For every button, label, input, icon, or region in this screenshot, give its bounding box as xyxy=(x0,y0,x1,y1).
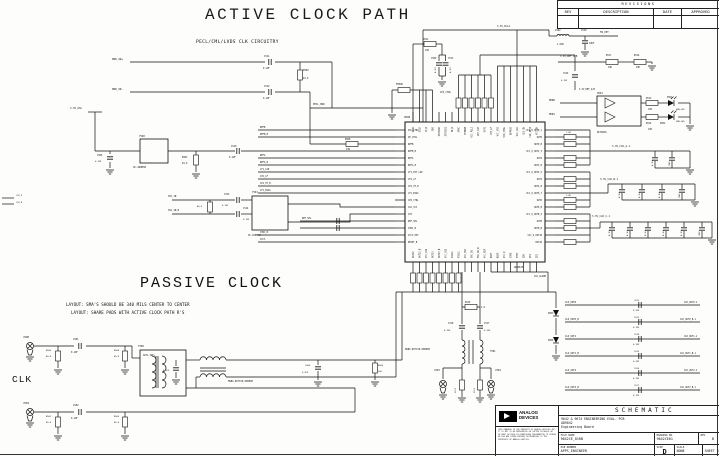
component-label: C525 xyxy=(634,351,640,353)
component-label: 0.1UF xyxy=(619,191,621,198)
revisions-col-date: DATE xyxy=(654,9,682,16)
logo-text-2: DEVICES xyxy=(519,416,538,421)
drawing-no-value: 9642CE01 xyxy=(657,437,697,442)
component-label: 0.1UF xyxy=(444,330,451,332)
resistor-icon xyxy=(424,273,429,283)
ground-icon xyxy=(438,82,446,86)
component-label: R508 xyxy=(345,138,351,141)
component-label: 0.1UF xyxy=(633,327,640,329)
component-label: R516 xyxy=(634,54,640,57)
pin-label: VCO_CTRL xyxy=(503,126,506,137)
capacitor-icon xyxy=(237,197,239,203)
component-box xyxy=(140,139,168,163)
component-label: 0.1UF xyxy=(263,67,270,70)
resistor-icon xyxy=(417,273,422,283)
title-block-title: SCHEMATIC xyxy=(559,406,719,416)
component-label: U500 xyxy=(404,115,411,119)
resistor-icon xyxy=(56,351,61,361)
ground-icon xyxy=(686,170,694,174)
capacitor-icon xyxy=(645,228,651,230)
pin-label: VCC_O13 xyxy=(445,248,448,258)
component-label: MABA-007159-000000 xyxy=(228,380,254,383)
pin-label: VCC_D xyxy=(503,251,506,258)
pin-label: OUT2 xyxy=(537,157,543,160)
ground-icon xyxy=(54,436,62,440)
component-label: D502 xyxy=(660,122,666,125)
component-label: CLK_OUT2_B-1 xyxy=(680,386,696,389)
pin-label: RESET_B xyxy=(408,241,418,244)
pin-label: VCP2 xyxy=(484,126,487,132)
component-label: L502 xyxy=(555,29,561,32)
component-label: OC-100MHZ xyxy=(248,234,261,237)
capacitor-icon xyxy=(315,367,321,369)
ground-icon xyxy=(371,382,379,386)
pin-label: RSET xyxy=(490,252,493,258)
ground-icon xyxy=(106,170,114,174)
component-label: T500 xyxy=(138,345,144,348)
component-label: FW_OPT xyxy=(600,31,609,34)
wire xyxy=(288,204,395,207)
component-label: 0.1UF xyxy=(163,370,170,372)
ground-icon xyxy=(691,202,699,206)
resistor-icon xyxy=(194,155,199,165)
component-label: C523 xyxy=(634,317,640,319)
pin-label: REF_SEL xyxy=(408,220,418,223)
inductor-icon xyxy=(462,340,465,364)
component-label: C510 xyxy=(231,145,237,148)
component-label: C527 xyxy=(634,385,640,387)
ground-icon xyxy=(458,398,466,402)
inductor-icon xyxy=(557,35,569,37)
component-label: C515 xyxy=(224,193,230,196)
component-label: J502 xyxy=(23,401,30,405)
inductor-icon xyxy=(200,374,226,377)
component-label: 0.1UF xyxy=(633,395,640,397)
capacitor-icon xyxy=(79,409,81,415)
inductor-icon xyxy=(162,356,166,388)
resistor-icon xyxy=(564,226,576,231)
component-label: 100 xyxy=(648,108,653,111)
led-icon xyxy=(668,100,674,106)
pin-label: ID1 xyxy=(529,253,532,258)
component-label: 1.0K xyxy=(566,132,572,134)
pin-label: OUT12_B xyxy=(419,248,422,258)
component-label: 49.9 xyxy=(182,162,188,165)
component-label: REF_SEL xyxy=(302,217,312,220)
component-label: C516 xyxy=(563,72,569,75)
capacitor-icon xyxy=(237,211,239,217)
pin-label: OUT13 xyxy=(432,251,435,258)
component-label: CLK_N xyxy=(16,202,23,204)
pin-label: CLK_IN xyxy=(523,126,526,135)
resistor-icon xyxy=(564,177,576,182)
component-label: 49.9 xyxy=(46,356,52,358)
revisions-col-description: DESCRIPTION xyxy=(579,9,654,16)
capacitor-icon xyxy=(443,63,449,65)
component-label: C501 xyxy=(73,338,79,341)
title-block-description: 9642 & 9674 ENGINEERING EVAL. PCB AD9642… xyxy=(559,416,719,433)
component-label: MABA-007159-000000 xyxy=(405,348,431,351)
component-label: C511 xyxy=(264,55,270,58)
resistor-icon xyxy=(430,273,435,283)
component-label: 0.1UF xyxy=(633,344,640,346)
component-label: OSC_IN_B xyxy=(168,209,180,212)
resistor-icon xyxy=(564,219,576,224)
capacitor-icon xyxy=(659,190,665,192)
pin-label: SYNC_B xyxy=(408,227,417,230)
component-label: R517 xyxy=(606,54,612,57)
component-label: Y501 xyxy=(252,191,258,194)
component-label: R500 xyxy=(46,350,52,352)
pin-label: STATUS1 xyxy=(445,126,448,136)
ground-icon xyxy=(552,356,560,360)
pin-label: OSC_IN_B xyxy=(477,247,480,258)
component-label: 100 xyxy=(425,49,430,52)
component-label: 0.1UF xyxy=(263,97,270,100)
pin-label: CP2_CTRL xyxy=(408,199,419,202)
component-label: 49.9 xyxy=(114,356,120,358)
pin-label: VCC_O_OUT6_7 xyxy=(526,192,542,195)
pin-label: OUT10 xyxy=(535,241,542,244)
component-label: CLK_P xyxy=(16,195,23,197)
inductor-icon xyxy=(480,340,483,364)
component-label: 0.1UF xyxy=(627,229,629,236)
analog-devices-logo: ANALOG DEVICES xyxy=(496,406,558,427)
component-label: CP1_TP_B xyxy=(260,182,271,185)
sma-connector-icon xyxy=(488,388,494,394)
pin-label: OUT12 xyxy=(412,251,415,258)
capacitor-icon xyxy=(79,343,81,349)
pin-label: OUT0_B xyxy=(534,143,543,146)
resistor-icon xyxy=(478,380,483,390)
capacitor-icon xyxy=(619,190,625,192)
pin-label: OUT4_B xyxy=(534,185,543,188)
led-icon xyxy=(671,111,677,121)
component-label: PWR_IN+ xyxy=(112,57,123,61)
resistor-icon xyxy=(564,205,576,210)
component-label: 3.3V_CLK_C-1 xyxy=(592,214,611,218)
resistor-icon xyxy=(564,184,576,189)
component-label: R506 xyxy=(378,365,384,367)
pin-label: XTAL2 xyxy=(458,251,461,258)
component-label: 1.0K xyxy=(566,195,572,197)
ground-icon xyxy=(708,240,716,244)
component-label: REFA xyxy=(260,154,266,157)
pin-label: REFB xyxy=(408,143,414,146)
resistor-icon xyxy=(56,417,61,427)
component-label: 49.9 xyxy=(46,422,52,424)
sma-connector-icon xyxy=(489,382,494,387)
resistor-icon xyxy=(465,305,477,310)
resistor-icon xyxy=(564,135,576,140)
component-label: C522 xyxy=(634,300,640,302)
component-label: J504 xyxy=(495,369,501,372)
component-label: CLK_OUT0 xyxy=(565,301,577,304)
component-label: 249 xyxy=(346,148,351,151)
component-label: C505 xyxy=(97,154,103,157)
component-label: LF1_BIAS xyxy=(260,189,271,192)
diode-icon xyxy=(553,310,559,316)
component-label: ADT1-1WT+ xyxy=(143,354,156,357)
component-label: 1.0 xyxy=(481,306,486,309)
pin-label: STATUS0 xyxy=(438,126,441,136)
component-label: C526 xyxy=(634,368,640,370)
pin-label: SYNC xyxy=(458,126,461,132)
resistor-icon xyxy=(646,115,658,120)
component-label: 100 xyxy=(648,128,653,131)
page-frame-right xyxy=(717,0,718,456)
component-label: MON0 xyxy=(549,99,555,102)
sma-connector-icon xyxy=(441,382,446,387)
page-title: ACTIVE CLOCK PATH xyxy=(205,6,411,24)
pin-label: SDIO xyxy=(412,126,415,132)
component-label: CLK_OUT0_B-1 xyxy=(680,318,696,321)
component-label: 3.3V_PLL2 xyxy=(497,25,511,28)
component-label: R511 xyxy=(423,38,429,41)
pin-label: OUT8 xyxy=(537,220,543,223)
capacitor-icon xyxy=(663,228,669,230)
component-label: 10K xyxy=(608,66,613,69)
component-label: 10UF xyxy=(669,160,671,166)
led-icon xyxy=(668,114,674,120)
component-box xyxy=(597,96,641,126)
schematic-page: OSC_CTRLZD_CTRLREFBREFB_BREFAREFA_BLF1_E… xyxy=(0,0,719,456)
component-label: CP1_LF xyxy=(260,175,269,178)
capacitor-icon xyxy=(459,326,465,328)
component-label: GRN-LED xyxy=(676,121,685,123)
pin-label: LF1_EXT_CAP xyxy=(408,171,423,174)
component-label: C517 xyxy=(484,322,490,325)
revisions-table: REVISIONS REV DESCRIPTION DATE APPROVED xyxy=(557,0,719,29)
capacitor-icon xyxy=(681,228,687,230)
component-label: 0.1UF xyxy=(484,330,491,332)
pin-label: REFA_B xyxy=(408,164,417,167)
component-label: VCO_CTRL xyxy=(440,91,452,94)
resistor-icon xyxy=(398,88,410,93)
legal-notice: THIS DRAWING IS THE PROPERTY OF ANALOG D… xyxy=(496,427,558,456)
component-label: 0.1UF xyxy=(663,229,665,236)
capacitor-icon xyxy=(237,148,239,154)
component-label: 0.1UF xyxy=(71,417,78,420)
component-label: C509 xyxy=(431,57,437,60)
component-label: C524 xyxy=(634,334,640,336)
pin-label: ID0 xyxy=(523,253,526,258)
resistor-icon xyxy=(463,98,468,108)
component-label: C519 xyxy=(581,29,587,32)
component-label: C502 xyxy=(73,404,79,407)
component-label: 10UF xyxy=(589,42,595,45)
component-label: 0.1UF xyxy=(222,205,229,207)
resistor-icon xyxy=(123,351,128,361)
component-label: REFA_B xyxy=(260,161,269,164)
component-label: C506 xyxy=(305,365,311,367)
component-label: 10UF xyxy=(679,192,681,198)
capacitor-icon xyxy=(173,368,179,370)
pin-label: EEPROM xyxy=(464,126,467,135)
component-label: 10K xyxy=(636,66,641,69)
pin-label: ZD_CTRL xyxy=(408,136,418,139)
capacitor-icon xyxy=(436,63,442,65)
resistor-icon xyxy=(476,98,481,108)
resistor-icon xyxy=(437,273,442,283)
component-label: 0.1UF xyxy=(435,66,437,73)
component-label: CLK_OUT0_B xyxy=(565,318,579,321)
capacitor-icon xyxy=(269,89,271,95)
component-label: REFB xyxy=(260,126,266,129)
layout-note-2: LAYOUT: SHARE PADS WITH ACTIVE CLOCK PAT… xyxy=(71,310,184,315)
component-label: AD9523 xyxy=(514,265,524,269)
component-label: LF1_CAP xyxy=(260,168,270,171)
sma-connector-icon xyxy=(440,388,446,394)
pin-label: VCC3_EXT xyxy=(408,234,419,237)
component-label: CLK_OUT2-1 xyxy=(684,369,698,372)
component-label: CLK_OUT1-1 xyxy=(684,335,698,338)
component-label: 0.1UF xyxy=(229,156,236,159)
sma-connector-icon xyxy=(27,350,33,356)
ground-icon xyxy=(648,66,656,70)
pin-label: CP1_LF xyxy=(408,178,417,181)
revisions-col-rev: REV xyxy=(558,9,579,16)
component-label: 0.1UF xyxy=(450,66,452,73)
pin-label: PD_B xyxy=(451,126,454,132)
ground-icon xyxy=(686,126,694,130)
pin-label: VCP xyxy=(408,213,413,216)
diode-icon xyxy=(553,337,559,343)
ground-icon xyxy=(581,52,589,56)
component-label: CLK_ALARM xyxy=(534,275,547,278)
pin-label: CP2_LF xyxy=(490,126,493,135)
capacitor-icon xyxy=(572,75,578,77)
resistor-icon xyxy=(564,163,576,168)
inductor-icon xyxy=(152,356,156,388)
pin-label: XTAL1 xyxy=(451,251,454,258)
component-label: C514 xyxy=(243,207,249,210)
component-label: 3.3V_OSC xyxy=(70,106,83,110)
resistor-icon xyxy=(564,156,576,161)
component-label: 0.1UF xyxy=(645,229,647,236)
resistor-icon xyxy=(456,98,461,108)
component-label: 0.1UF xyxy=(639,191,641,198)
component-label: 0.1UF xyxy=(243,219,250,221)
component-label: 0.1UF xyxy=(561,80,568,82)
component-label: R503 xyxy=(182,156,188,159)
component-label: 3.3V_REF_A/B xyxy=(560,55,578,58)
component-label: FB500 xyxy=(396,83,404,86)
revisions-col-approved: APPROVED xyxy=(682,9,719,16)
pin-label: VCC_PLL2 xyxy=(471,126,474,137)
resistor-icon xyxy=(443,273,448,283)
pin-label: OUT8_B xyxy=(534,227,543,230)
resistor-icon xyxy=(450,273,455,283)
pin-label: REFB_B xyxy=(408,150,417,153)
component-label: 0.1UF xyxy=(633,310,640,312)
resistor-icon xyxy=(606,60,618,65)
component-label: VCC3 xyxy=(260,238,266,241)
component-label: PECL_PWR xyxy=(313,103,325,106)
resistor-icon xyxy=(208,202,213,212)
component-label: J500 xyxy=(23,335,30,339)
component-label: 49.9 xyxy=(455,387,457,393)
ground-icon xyxy=(439,395,447,399)
pin-label: EPAD xyxy=(510,252,513,258)
component-label: 0.1UF xyxy=(633,361,640,363)
pin-label: OUT4 xyxy=(537,178,543,181)
pin-label: CS_B xyxy=(425,126,428,132)
resistor-icon xyxy=(469,98,474,108)
pin-label: OUT2_B xyxy=(534,164,543,167)
capacitor-icon xyxy=(627,228,633,230)
resistor-icon xyxy=(456,273,461,283)
pin-label: SDO xyxy=(432,126,435,131)
component-label: R504 xyxy=(114,350,120,352)
pin-label: VCC_CLK xyxy=(516,126,519,136)
resistor-icon xyxy=(373,363,378,373)
board-line-3: Engineering Board xyxy=(561,425,719,429)
pin-label: OUT0 xyxy=(537,136,543,139)
component-label: PWR_IN- xyxy=(112,87,123,91)
pin-label: OUT6 xyxy=(537,199,543,202)
component-label: CLK_OUT1_B-1 xyxy=(680,352,696,355)
component-label: GRN-LED xyxy=(676,109,685,111)
component-label: 49.9 xyxy=(197,206,203,208)
file-name-value: 9642CE_01RB xyxy=(561,437,653,442)
logo-triangle-icon xyxy=(504,413,510,419)
page-frame-bottom xyxy=(0,454,719,455)
component-label: D503 xyxy=(548,312,554,315)
component-label: 3.3V_CLK_A-1 xyxy=(612,144,631,148)
component-label: OSC_IN xyxy=(168,195,177,198)
sma-connector-icon xyxy=(28,410,33,415)
resistor-icon xyxy=(489,98,494,108)
component-label: R519 xyxy=(465,301,471,304)
pcb-number-value: APPS_ENGINEER xyxy=(561,449,653,454)
capacitor-icon xyxy=(669,158,675,160)
layout-note-1: LAYOUT: SMA'S SHOULD BE 340 MILS CENTER … xyxy=(66,302,190,307)
resistor-icon xyxy=(411,273,416,283)
component-label: J503 xyxy=(434,369,440,372)
ground-icon xyxy=(172,380,180,384)
component-label: SYNC_B xyxy=(260,231,269,234)
resistor-icon xyxy=(482,98,487,108)
pin-label: LF2_CAP xyxy=(477,126,480,136)
component-label: 1.0UH xyxy=(557,43,564,46)
clock-ic-body xyxy=(405,122,545,262)
component-label: MON1 xyxy=(549,113,555,116)
capacitor-icon xyxy=(582,41,588,43)
revisions-title: REVISIONS xyxy=(558,1,719,9)
pin-label: CLK_VCC xyxy=(408,206,418,209)
capacitor-icon xyxy=(639,190,645,192)
section-subtitle: PECL/CML/LVDS CLK CIRCUITRY xyxy=(196,40,279,45)
resistor-icon xyxy=(424,42,436,47)
pin-label: VCC_IN xyxy=(536,126,539,135)
component-label: R509 xyxy=(303,69,309,72)
schematic-canvas: OSC_CTRLZD_CTRLREFBREFB_BREFAREFA_BLF1_E… xyxy=(0,0,719,456)
pin-label: VCC_REF xyxy=(484,248,487,258)
component-label: NC7WZ16 xyxy=(597,131,607,134)
component-label: 0.1UF xyxy=(659,191,661,198)
ground-icon xyxy=(54,370,62,374)
buffer-gate-icon xyxy=(605,112,615,122)
ground-icon xyxy=(192,174,200,178)
component-label: R505 xyxy=(114,416,120,418)
ground-icon xyxy=(476,398,484,402)
ground-icon xyxy=(26,357,34,361)
pin-label: BYPASS xyxy=(510,126,513,135)
pin-label: CP1_TP_B xyxy=(408,185,419,188)
component-label: Y500 xyxy=(139,135,145,138)
pin-label: VCC_O_OUT2_3 xyxy=(526,150,542,153)
